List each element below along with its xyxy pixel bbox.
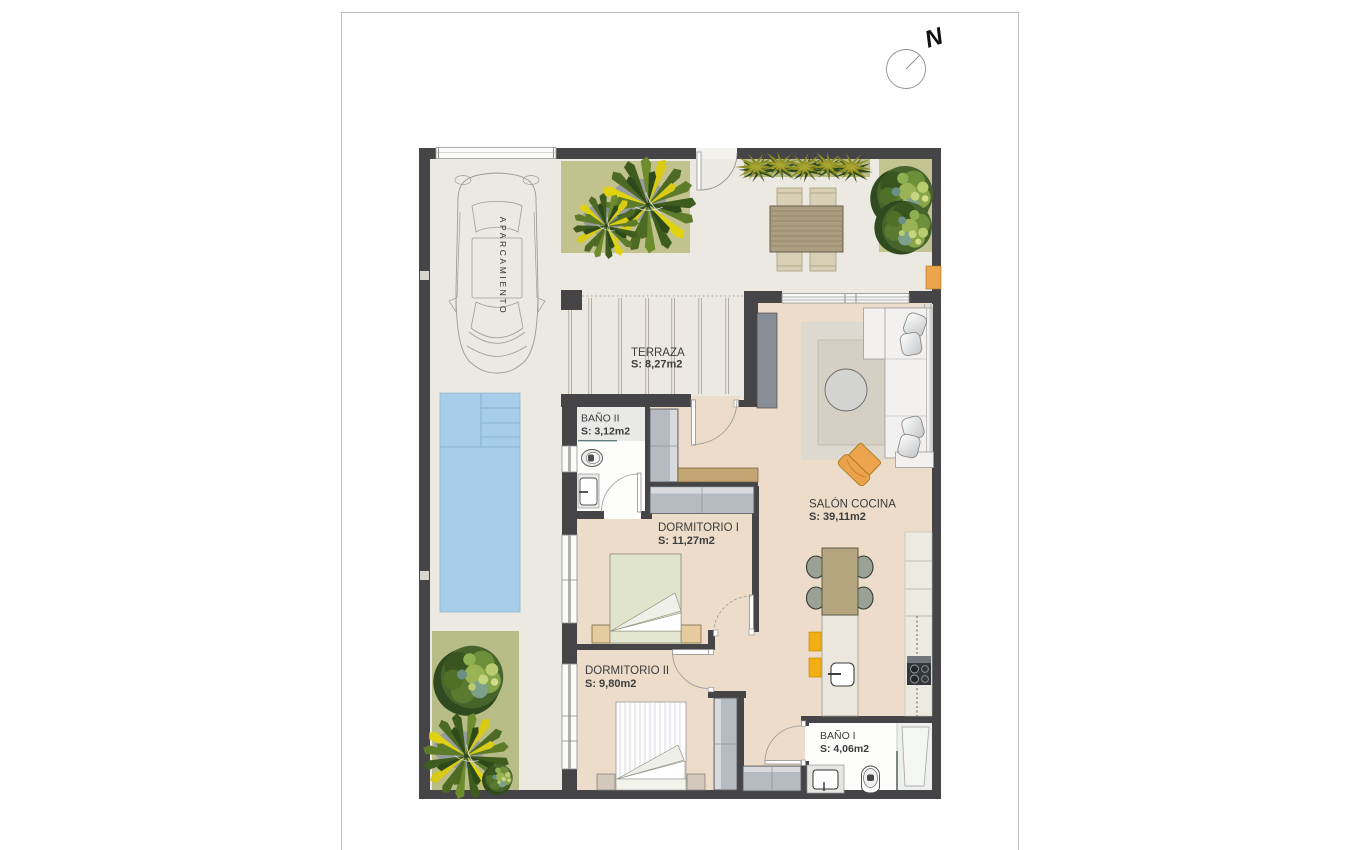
svg-text:S: 3,12m2: S: 3,12m2 (581, 426, 630, 438)
svg-text:BAÑO I: BAÑO I (820, 729, 856, 742)
svg-text:S: 8,27m2: S: 8,27m2 (631, 359, 682, 371)
svg-text:S: 11,27m2: S: 11,27m2 (658, 535, 715, 547)
svg-text:TERRAZA: TERRAZA (631, 347, 685, 359)
svg-text:DORMITORIO II: DORMITORIO II (585, 665, 669, 677)
svg-text:DORMITORIO I: DORMITORIO I (658, 522, 739, 534)
svg-text:S: 9,80m2: S: 9,80m2 (585, 678, 636, 690)
svg-text:S: 4,06m2: S: 4,06m2 (820, 743, 869, 755)
svg-text:S: 39,11m2: S: 39,11m2 (809, 511, 866, 523)
svg-text:SALÓN COCINA: SALÓN COCINA (809, 498, 896, 511)
svg-text:APARCAMIENTO: APARCAMIENTO (498, 217, 508, 315)
svg-text:BAÑO II: BAÑO II (581, 412, 620, 425)
